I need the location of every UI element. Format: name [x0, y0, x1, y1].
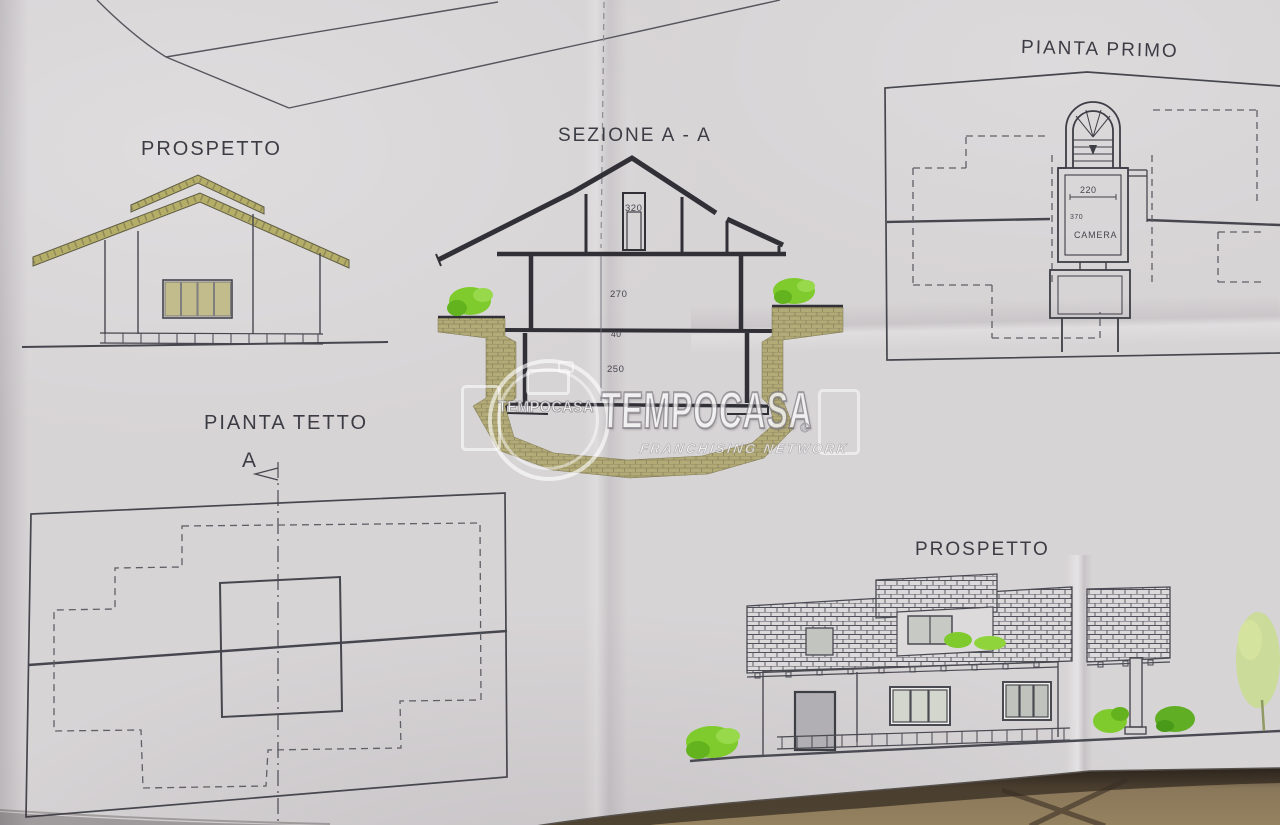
dim-stair-220: 220	[1080, 185, 1097, 195]
mid-slab	[504, 330, 773, 331]
bush-blob	[447, 300, 467, 316]
ground-line	[22, 342, 388, 347]
section-flag	[255, 468, 278, 480]
stairwell	[1058, 102, 1128, 168]
roof-tile-ticks	[33, 197, 349, 264]
sketch-line	[289, 0, 780, 108]
roof-left-wing	[438, 192, 573, 260]
dim-room-370: 370	[1070, 214, 1083, 221]
ridge-line	[28, 631, 507, 665]
bush-blob	[473, 288, 493, 302]
section-drawing	[436, 2, 843, 478]
bush-left	[686, 726, 740, 759]
roof-band-lower	[33, 193, 349, 268]
tree	[1236, 612, 1280, 731]
roof-small-window	[806, 628, 833, 655]
bush-right	[1155, 706, 1195, 732]
roof-right-wing	[727, 219, 783, 245]
label-first-floor-plan: PIANTA PRIMO	[1021, 37, 1179, 63]
pane	[198, 282, 214, 316]
sketch-line	[166, 57, 289, 108]
porch-post-base	[1125, 727, 1146, 734]
dashed-segment	[913, 136, 1048, 285]
bush-blob	[686, 741, 710, 759]
dim-slab-40: 40	[611, 329, 621, 339]
door-opening	[1080, 262, 1106, 270]
table-floor	[0, 768, 1280, 825]
pane	[182, 282, 198, 316]
tree-canopy	[1238, 620, 1262, 660]
label-section-marker-a: A	[242, 449, 258, 473]
bush-blob	[716, 728, 740, 744]
bush-left	[447, 287, 493, 316]
roof-band-right	[1087, 587, 1170, 662]
plan-mid-wall	[887, 219, 1280, 225]
bush-blob	[797, 280, 815, 292]
bush-blob	[1111, 707, 1129, 721]
room-label-camera: CAMERA	[1074, 230, 1117, 240]
drawing-linework	[0, 0, 1280, 825]
pane	[165, 282, 181, 316]
attic-flue	[623, 193, 645, 250]
cutoff-sketch	[97, 0, 780, 108]
lower-room-outer	[1050, 270, 1130, 318]
base-course-ticks	[105, 333, 318, 344]
bush-blob	[1156, 720, 1174, 732]
porch-post	[1130, 658, 1142, 727]
building-dashed-outline	[54, 523, 481, 788]
bush-middle	[1093, 707, 1129, 733]
label-front-elevation: PROSPETTO	[141, 138, 282, 161]
pane	[893, 690, 910, 722]
attic-door	[627, 212, 641, 250]
dashed-segment	[1153, 110, 1257, 206]
pane	[1006, 685, 1019, 717]
window-panes	[165, 282, 231, 316]
bottom-slab	[506, 404, 768, 406]
pane	[929, 690, 947, 722]
pane	[1020, 685, 1033, 717]
dashed-segment	[913, 285, 1100, 338]
floor-walls	[531, 256, 741, 329]
sketch-line	[97, 0, 166, 57]
attic-walls	[586, 194, 779, 252]
flower-box-plant	[944, 632, 972, 648]
front-elevation-drawing	[22, 175, 388, 347]
dashed-segment	[1218, 232, 1262, 282]
dim-ground-250: 250	[607, 364, 624, 375]
ground-line	[690, 731, 1280, 761]
label-roof-plan: PIANTA TETTO	[204, 412, 368, 435]
dim-attic-320: 320	[625, 203, 642, 214]
pane	[1034, 685, 1048, 717]
flower-box-plant	[974, 636, 1006, 650]
room-stem-walls	[1062, 318, 1118, 352]
dim-floor-270: 270	[610, 289, 627, 300]
roof-plan-drawing	[26, 462, 507, 821]
room-outer-wall	[1058, 168, 1128, 262]
earth-hatch	[438, 307, 843, 478]
camera-room	[1050, 168, 1147, 352]
side-elevation-drawing	[686, 574, 1280, 761]
plan-dashed-outline	[913, 110, 1262, 338]
label-section: SEZIONE A - A	[558, 125, 712, 147]
wall-stub	[1128, 170, 1147, 222]
pane	[911, 690, 928, 722]
sketch-line	[166, 2, 498, 57]
pane	[215, 282, 231, 316]
lower-room-inner	[1058, 276, 1122, 314]
roof-outline	[26, 493, 507, 817]
bush-blob	[774, 290, 792, 304]
basement-walls	[525, 333, 747, 403]
bush-right	[773, 278, 815, 304]
label-side-elevation: PROSPETTO	[915, 539, 1050, 561]
architectural-plan-photo: PROSPETTO SEZIONE A - A PIANTA PRIMO PIA…	[0, 0, 1280, 825]
dashed-segment	[1052, 155, 1152, 282]
entry-door	[795, 692, 835, 750]
